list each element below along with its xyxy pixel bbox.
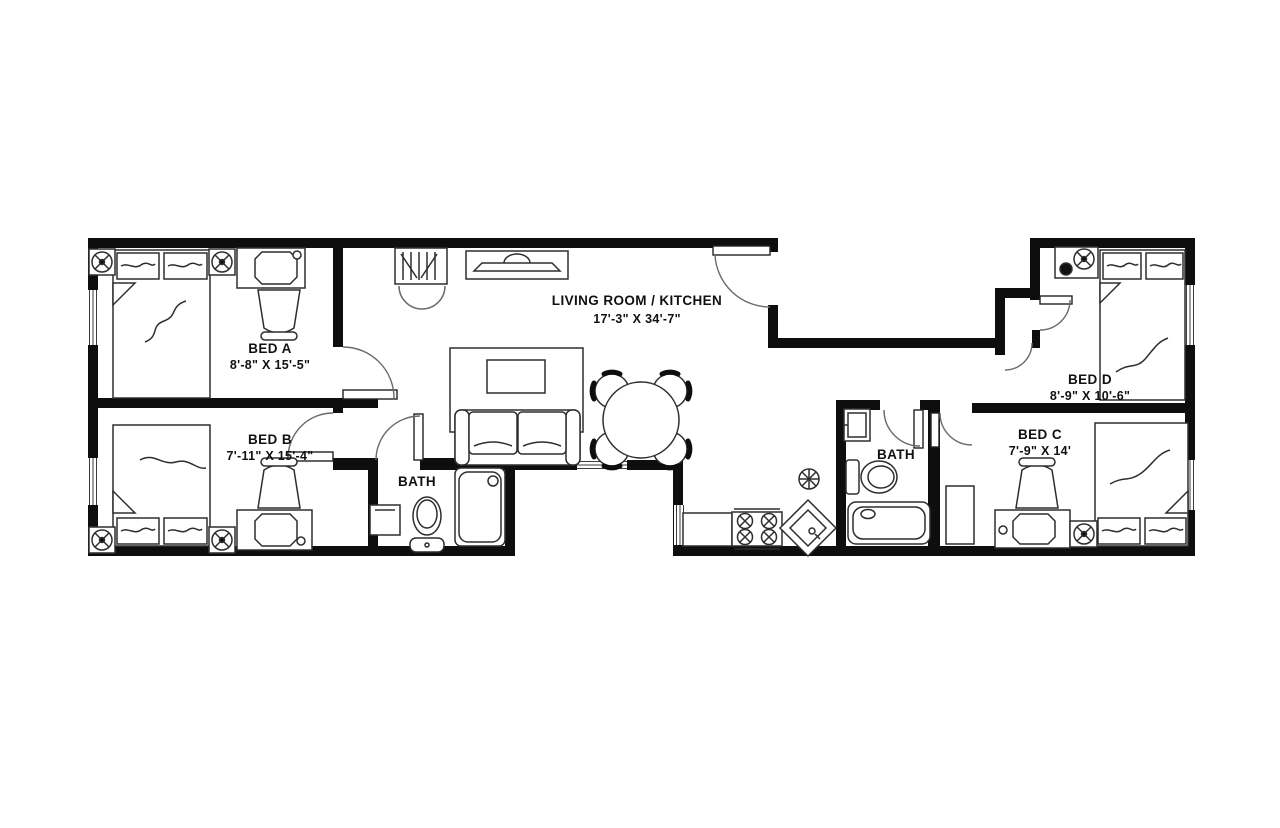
dims-living: 17'-3" X 34'-7" [593,312,681,326]
ceiling-fixture-icon [1055,247,1098,278]
door-bed-a [343,347,397,399]
bed-c [1095,423,1188,546]
window-bed-d [1184,285,1196,345]
label-living: LIVING ROOM / KITCHEN [552,293,722,308]
dims-bed-d: 8'-9" X 10'-6" [1050,389,1130,403]
bed-a [113,250,210,398]
label-bath-right: BATH [877,447,915,462]
label-bed-a: BED A [248,341,292,356]
floor-plan-page: BED A 8'-8" X 15'-5" BED B 7'-11" X 15'-… [0,0,1280,828]
door-bath-right [884,410,923,448]
counter [683,513,732,546]
toilet-tank [846,460,859,494]
tv [466,251,568,279]
desk-bed-a [237,248,305,340]
door-bed-d-closet [1040,296,1072,330]
door-bed-d [1005,343,1032,370]
rug-and-sofa [450,348,583,465]
window-bed-b [87,458,99,505]
floor-plan: BED A 8'-8" X 15'-5" BED B 7'-11" X 15'-… [0,0,1280,828]
label-bed-c: BED C [1018,427,1062,442]
desk-bed-c [995,458,1070,548]
bed-b [113,425,210,546]
dining-table [603,382,679,458]
dining-set [592,372,690,468]
dims-bed-a: 8'-8" X 15'-5" [230,358,310,372]
kitchen [683,469,836,556]
tub [848,502,930,544]
label-bed-b: BED B [248,432,292,447]
window-bed-a [87,290,99,345]
stove [732,512,782,546]
dims-bed-c: 7'-9" X 14' [1009,444,1071,458]
desk-bed-b [237,458,312,550]
ceiling-fixture-icon [89,249,115,275]
closet-bed-c [946,486,974,544]
wardrobe [395,248,447,309]
ceiling-fixture-icon [89,527,115,553]
bath-left-fixtures [370,468,505,552]
disposal-icon [799,469,819,489]
label-bath-left: BATH [398,474,436,489]
ceiling-fixture-icon [209,249,235,275]
door-bath-left [376,414,423,460]
door-bed-c [931,413,972,447]
coffee-table [487,360,545,393]
label-bed-d: BED D [1068,372,1112,387]
ceiling-fixture-icon [1070,521,1097,547]
ceiling-fixture-icon [209,527,235,553]
bed-d [1100,250,1185,400]
dims-bed-b: 7'-11" X 15'-4" [227,449,314,463]
